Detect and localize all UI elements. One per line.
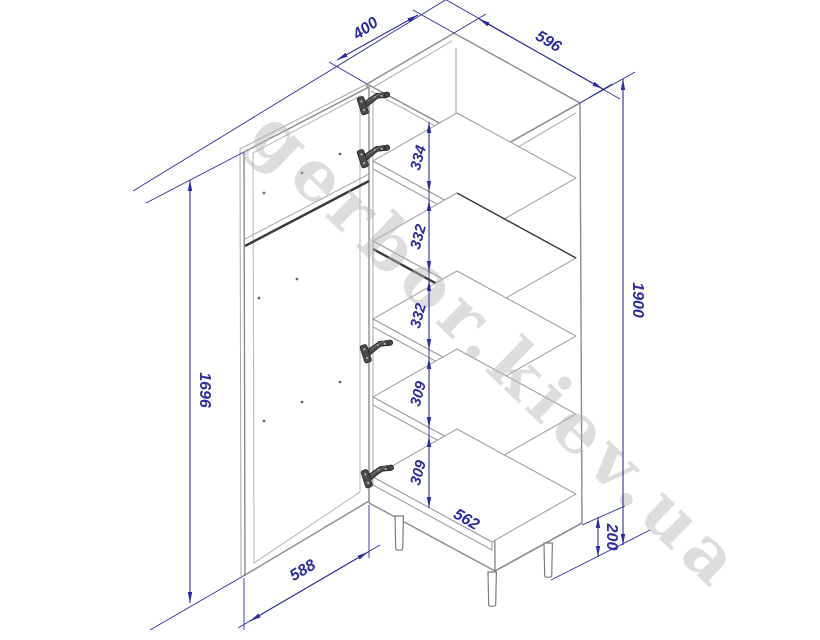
cabinet-drawing-svg: gerbor.kiev.ua 400 596 1900 bbox=[0, 0, 820, 640]
technical-drawing-page: gerbor.kiev.ua 400 596 1900 bbox=[0, 0, 820, 640]
dim-label-height: 1900 bbox=[629, 282, 646, 318]
dim-label-depth: 400 bbox=[349, 14, 382, 44]
dim-label-door-height: 1696 bbox=[196, 372, 213, 408]
dim-label-leg-height: 200 bbox=[603, 523, 620, 551]
dim-label-door-width: 588 bbox=[287, 557, 319, 585]
dim-door-height: 1696 bbox=[146, 152, 245, 630]
